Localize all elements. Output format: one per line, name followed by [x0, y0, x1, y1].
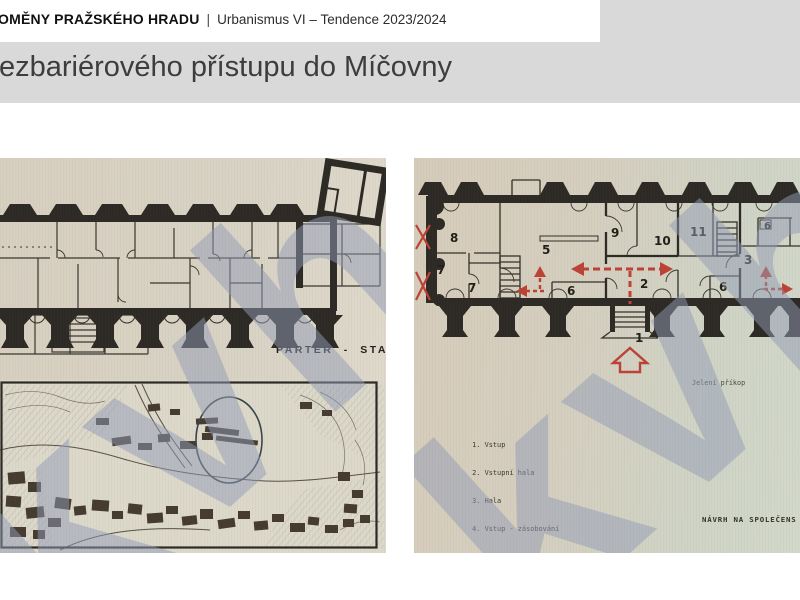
room-legend: 1. Vstup 2. Vstupní hala 3. Hala 4. Vstu… — [468, 422, 605, 553]
room-number: 6 — [719, 281, 727, 293]
slide-title: ezbariérového přístupu do Míčovny — [0, 52, 452, 84]
legend-item: 2. Vstupní hala — [468, 469, 605, 478]
room-number: 8 — [450, 232, 458, 244]
room-number: 6 — [567, 285, 575, 297]
course-title: OMĚNY PRAŽSKÉHO HRADU — [0, 11, 200, 27]
header-separator: | — [207, 11, 211, 27]
course-subtitle: Urbanismus VI – Tendence 2023/2024 — [217, 12, 446, 27]
header: OMĚNY PRAŽSKÉHO HRADU|Urbanismus VI – Te… — [0, 11, 447, 27]
room-number: 7 — [437, 264, 445, 276]
room-number: 10 — [654, 235, 671, 247]
floor-plan-existing: PARTER - STAV — [0, 158, 386, 380]
plan-caption: PARTER - STAV — [276, 344, 386, 356]
room-number: 5 — [542, 244, 550, 256]
room-number: 3 — [744, 254, 752, 266]
room-number: 2 — [640, 278, 648, 290]
room-number: 6 — [764, 222, 771, 232]
right-figure-photo: 8 7 7 5 9 10 11 6 3 6 2 6 1 Jelení příko… — [414, 158, 800, 553]
legend-item: 1. Vstup — [468, 441, 605, 450]
proposal-caption: NÁVRH NA SPOLEČENS — [702, 515, 797, 524]
legend-item: 4. Vstup - zásobování — [468, 525, 605, 534]
entrance-arrow-icon — [613, 348, 647, 372]
site-map — [0, 380, 386, 553]
legend-item: 3. Hala — [468, 497, 605, 506]
room-number: 11 — [690, 226, 707, 238]
annex-structure — [320, 162, 385, 222]
site-map-drawing — [0, 380, 386, 553]
slide: OMĚNY PRAŽSKÉHO HRADU|Urbanismus VI – Te… — [0, 0, 800, 600]
room-number: 7 — [468, 282, 476, 294]
room-number: 9 — [611, 227, 619, 239]
floor-plan-proposal-drawing — [414, 158, 800, 388]
moat-label: Jelení příkop — [692, 379, 745, 387]
room-number: 1 — [635, 332, 643, 344]
left-figure-photo: PARTER - STAV — [0, 158, 386, 553]
